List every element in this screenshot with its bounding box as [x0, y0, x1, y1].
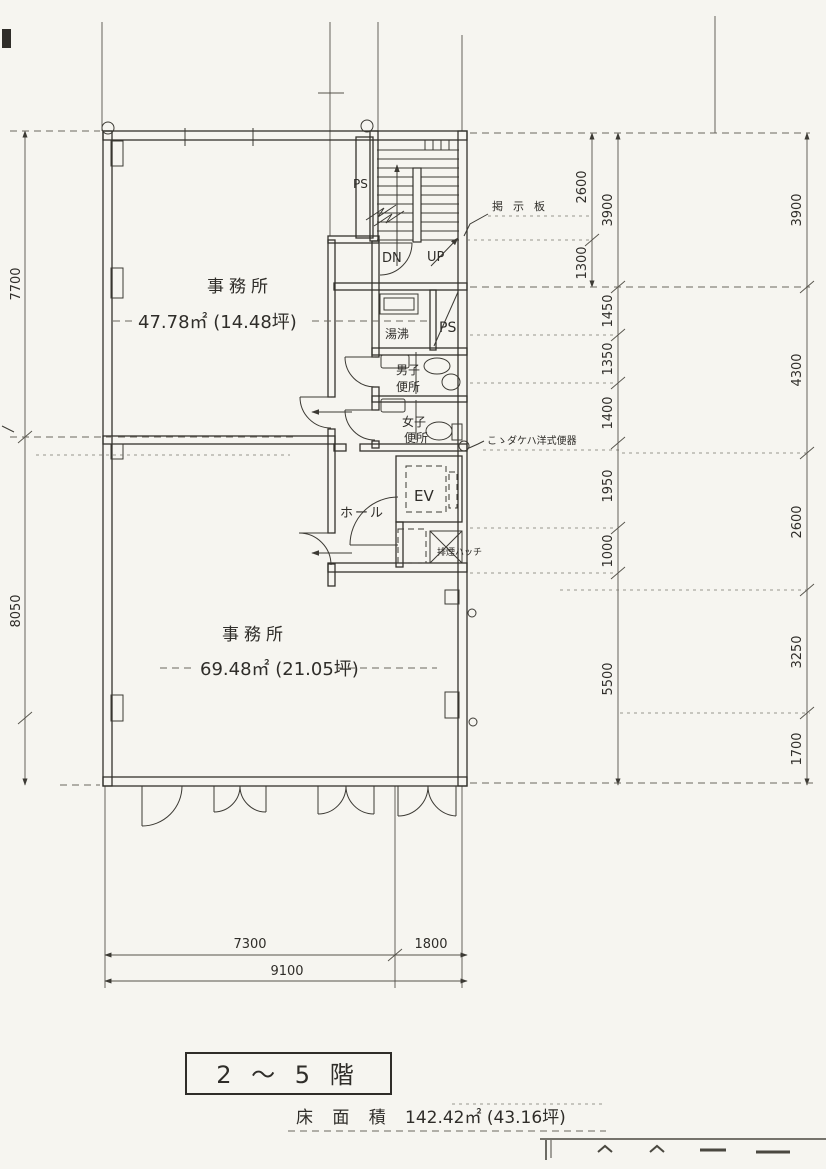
womens-toilet-label-2: 便所	[404, 431, 428, 445]
elevator-label: EV	[414, 487, 434, 505]
scan-artifacts	[2, 29, 344, 432]
truncated-row-marks	[540, 1139, 826, 1160]
walls	[103, 128, 467, 786]
floor-area-value: 142.42㎡ (43.16坪)	[405, 1108, 566, 1128]
office-upper-area: 47.78㎡ (14.48坪)	[138, 311, 297, 333]
dim-outer-1700: 1700	[790, 732, 805, 765]
dimension-left: 7700 8050	[9, 131, 296, 785]
western-toilet-note: こゝダケハ洋式便器	[487, 434, 577, 447]
water-heating-label: 湯沸	[385, 327, 409, 341]
dim-inner-b-1400: 1400	[601, 396, 616, 429]
title-block: 2 ～ 5 階 床 面 積 142.42㎡ (43.16坪)	[186, 1053, 606, 1131]
dim-inner-a-2600: 2600	[575, 170, 590, 203]
office-lower-area: 69.48㎡ (21.05坪)	[200, 658, 359, 680]
water-heater-counter	[380, 294, 418, 314]
smoke-hatch-label: 排煙ハッチ	[437, 546, 482, 558]
stair-handrail	[413, 168, 421, 242]
hall-label: ホール	[340, 506, 385, 521]
floor-plan-drawing: 事務所 47.78㎡ (14.48坪) 事務所 69.48㎡ (21.05坪) …	[0, 0, 826, 1169]
dim-inner-a-1300: 1300	[575, 246, 590, 279]
stair-up-label: UP	[427, 250, 445, 265]
dim-inner-b-5500: 5500	[601, 662, 616, 695]
dimension-right-inner-b: 3900 1450 1350 1400 1950 1000 5500	[601, 133, 625, 785]
floor-range-label: 2 ～ 5 階	[216, 1061, 359, 1089]
floor-area-caption: 床 面 積	[296, 1108, 393, 1128]
dim-inner-b-3900: 3900	[601, 193, 616, 226]
dim-inner-b-1950: 1950	[601, 469, 616, 502]
scanned-floor-plan-sheet: 事務所 47.78㎡ (14.48坪) 事務所 69.48㎡ (21.05坪) …	[0, 0, 826, 1169]
dimension-right-outer: 3900 4300 2600 3250 1700	[790, 133, 814, 785]
pipe-shaft-diagonal	[434, 292, 458, 346]
dim-outer-4300: 4300	[790, 353, 805, 386]
extension-lines-right	[470, 133, 818, 783]
mens-toilet-label-1: 男子	[396, 363, 420, 377]
dim-bottom-1800: 1800	[414, 937, 447, 952]
pipe-shaft-upper-label: PS	[353, 177, 368, 191]
dimension-bottom: 7300 1800 9100	[105, 937, 467, 981]
dim-inner-b-1450: 1450	[601, 294, 616, 327]
dim-left-8050: 8050	[9, 594, 24, 627]
dim-inner-b-1350: 1350	[601, 342, 616, 375]
stair-down-label: DN	[382, 251, 402, 266]
office-lower-label: 事務所	[222, 625, 288, 645]
dim-outer-2600: 2600	[790, 505, 805, 538]
urinal	[442, 374, 460, 390]
dimension-right-inner-a: 2600 1300	[575, 133, 599, 287]
western-toilet	[426, 422, 452, 440]
staircase	[366, 140, 459, 266]
dim-outer-3250: 3250	[790, 635, 805, 668]
womens-basin	[381, 399, 405, 412]
dim-bottom-7300: 7300	[233, 937, 266, 952]
dim-left-7700: 7700	[9, 267, 24, 300]
womens-toilet-label-1: 女子	[402, 414, 426, 429]
mens-toilet-label-2: 便所	[396, 380, 420, 394]
dim-outer-3900: 3900	[790, 193, 805, 226]
pipe-shaft-mid-label: PS	[439, 320, 456, 336]
office-upper-label: 事務所	[207, 277, 273, 297]
dim-bottom-9100: 9100	[270, 964, 303, 979]
grid-extension-lines	[102, 16, 715, 988]
dim-inner-b-1000: 1000	[601, 534, 616, 567]
bulletin-board-note: 掲示板	[492, 199, 555, 213]
urinal	[424, 358, 450, 374]
